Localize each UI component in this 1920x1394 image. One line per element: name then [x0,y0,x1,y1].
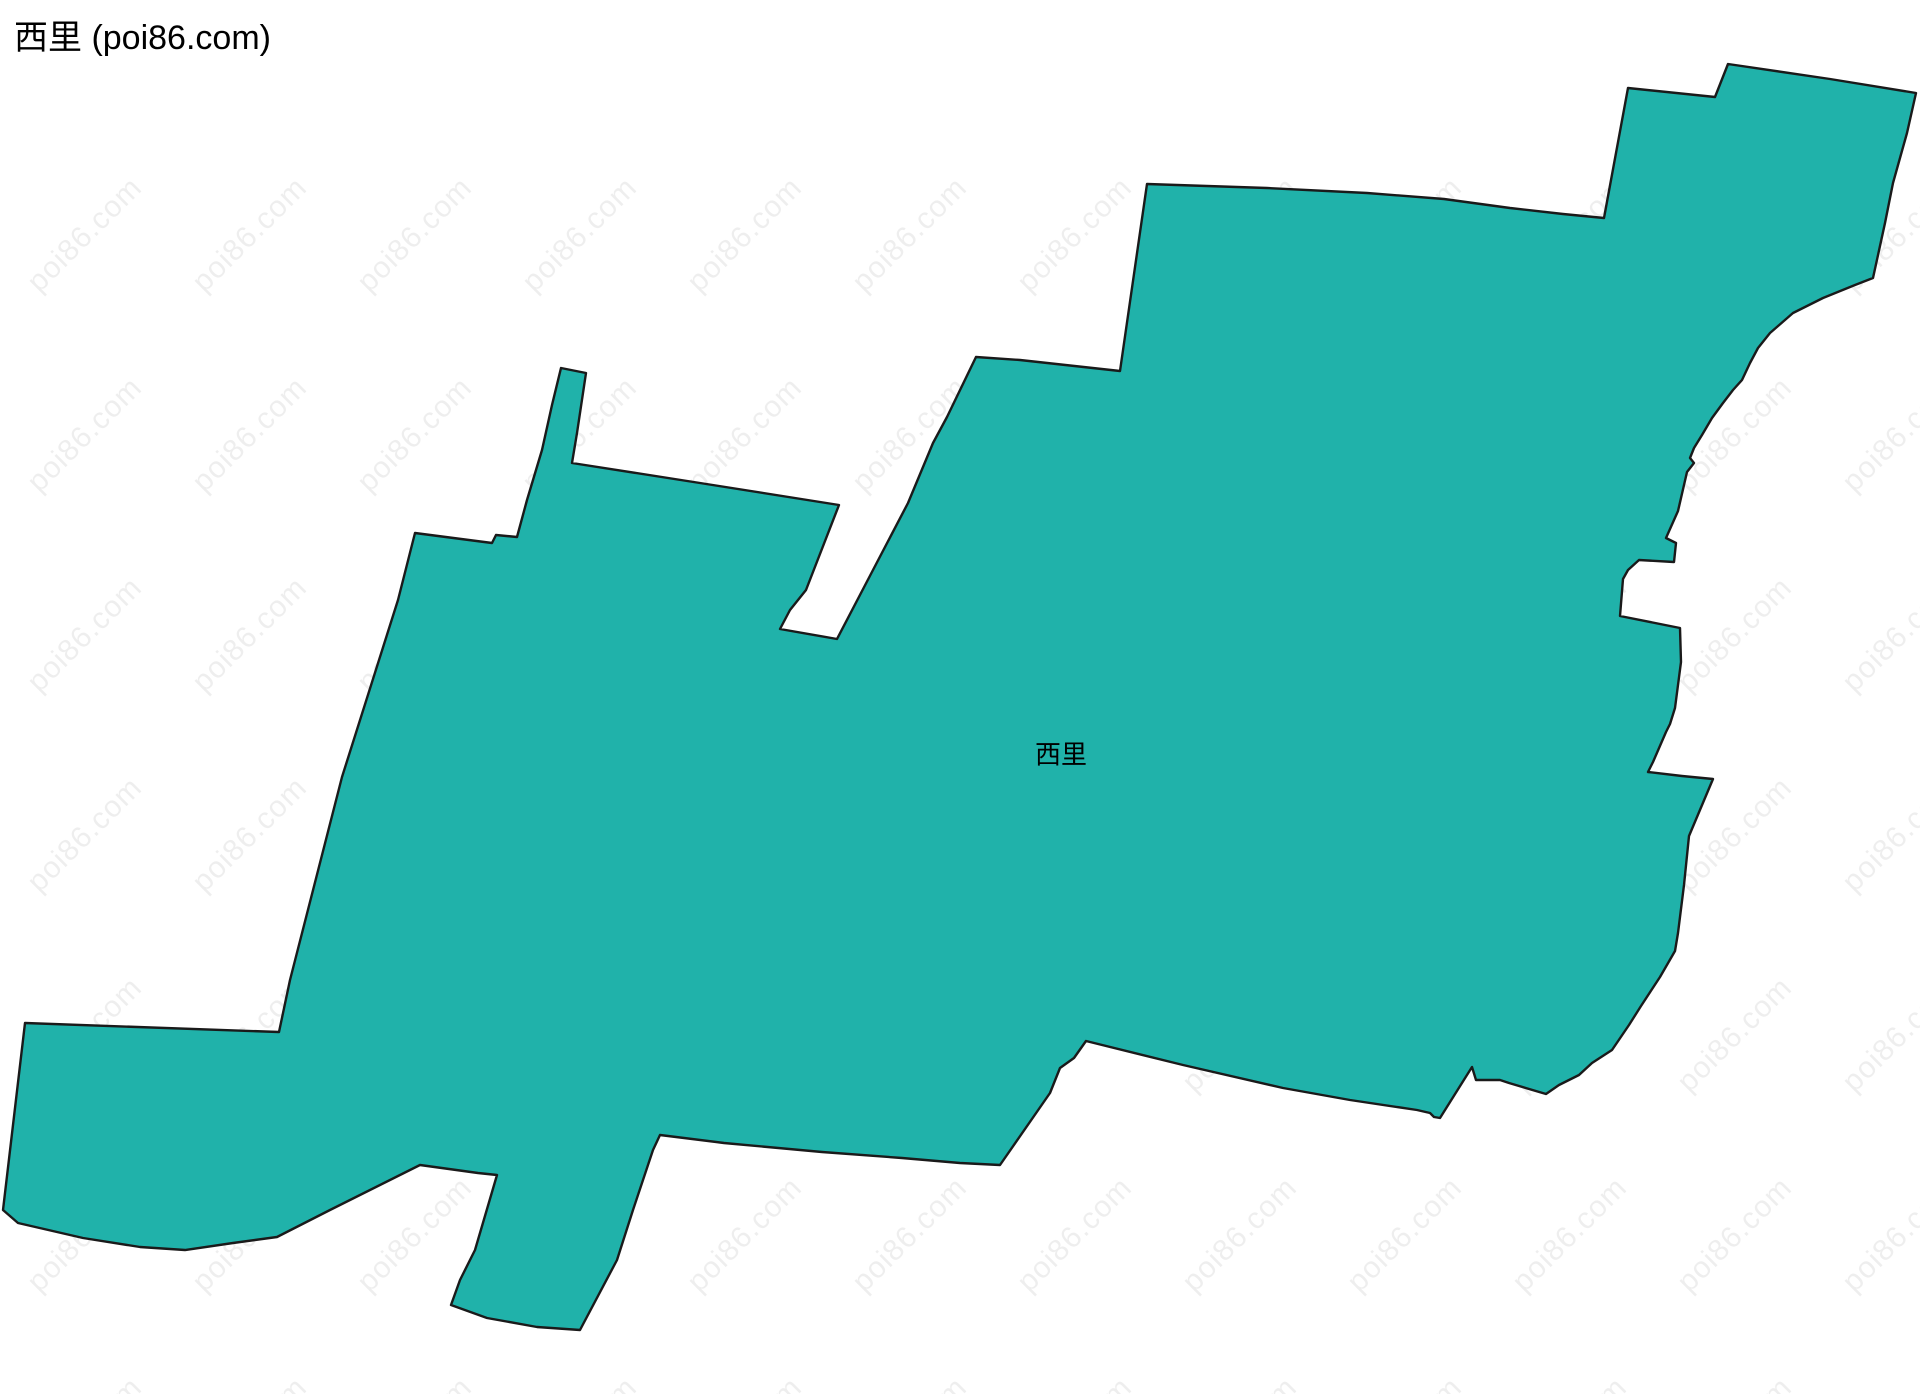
page-title: 西里 (poi86.com) [14,10,271,59]
region-label: 西里 [1035,735,1087,772]
map-page: poi86.compoi86.compoi86.compoi86.compoi8… [0,0,1920,1394]
region-boundary-xili [3,64,1916,1330]
district-map-canvas [0,0,1920,1394]
